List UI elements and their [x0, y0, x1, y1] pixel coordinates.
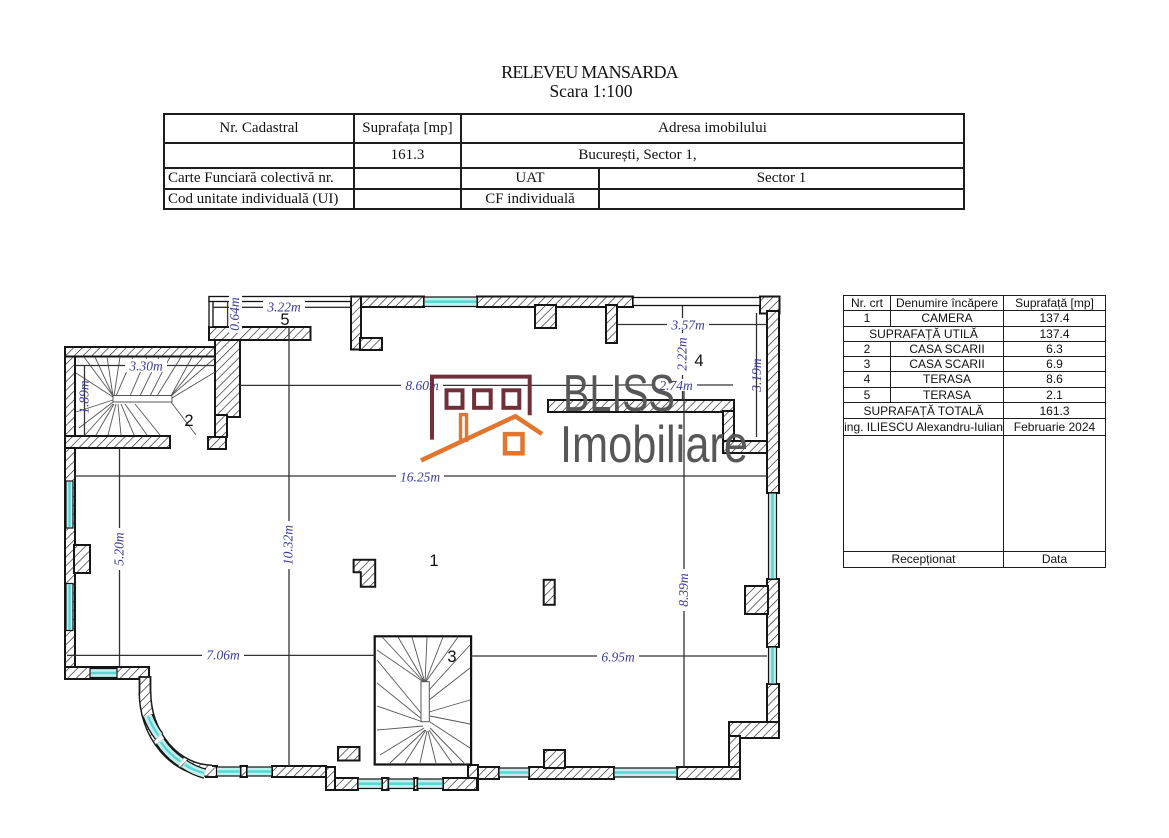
svg-text:10.32m: 10.32m [281, 525, 296, 565]
svg-text:8.39m: 8.39m [676, 573, 691, 607]
svg-text:3.30m: 3.30m [128, 359, 163, 374]
svg-text:5: 5 [280, 311, 289, 329]
svg-text:4: 4 [694, 352, 703, 370]
svg-text:6.95m: 6.95m [601, 650, 635, 665]
svg-text:0.64m: 0.64m [227, 297, 242, 331]
svg-text:7.06m: 7.06m [206, 648, 240, 663]
svg-text:Imobiliare: Imobiliare [560, 416, 748, 474]
svg-text:1.89m: 1.89m [77, 380, 92, 414]
svg-text:2.22m: 2.22m [675, 337, 690, 371]
svg-text:1: 1 [429, 552, 438, 570]
svg-text:3.19m: 3.19m [749, 358, 764, 393]
svg-text:3: 3 [447, 648, 456, 666]
svg-text:3.57m: 3.57m [670, 318, 705, 333]
svg-text:5.20m: 5.20m [112, 532, 127, 566]
svg-text:2: 2 [184, 412, 193, 430]
svg-text:BLISS: BLISS [563, 365, 675, 423]
svg-text:16.25m: 16.25m [400, 470, 440, 485]
